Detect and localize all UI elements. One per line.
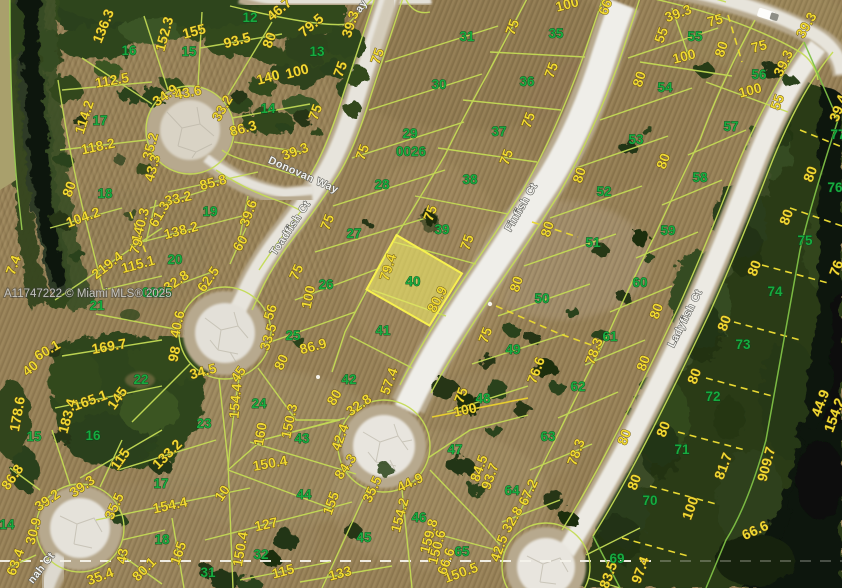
svg-text:51: 51 xyxy=(585,235,601,250)
svg-text:62: 62 xyxy=(570,379,585,394)
svg-text:21: 21 xyxy=(89,298,105,313)
svg-text:44: 44 xyxy=(296,487,312,502)
svg-text:72: 72 xyxy=(705,389,720,404)
svg-text:18: 18 xyxy=(154,532,170,547)
svg-text:60: 60 xyxy=(632,275,647,290)
svg-text:58: 58 xyxy=(692,170,708,185)
svg-text:64: 64 xyxy=(504,483,520,498)
svg-text:45: 45 xyxy=(356,530,372,545)
svg-text:154.4: 154.4 xyxy=(226,383,245,420)
svg-text:74: 74 xyxy=(767,284,783,299)
svg-text:75: 75 xyxy=(797,233,813,248)
svg-text:15: 15 xyxy=(26,429,42,444)
svg-text:49: 49 xyxy=(505,342,520,357)
svg-text:56: 56 xyxy=(751,67,767,82)
svg-text:39: 39 xyxy=(434,222,449,237)
svg-text:26: 26 xyxy=(318,277,334,292)
svg-text:29: 29 xyxy=(402,126,417,141)
svg-text:41: 41 xyxy=(375,323,391,338)
svg-text:61: 61 xyxy=(602,329,618,344)
svg-text:53: 53 xyxy=(628,132,644,147)
svg-text:59: 59 xyxy=(660,223,675,238)
svg-text:23: 23 xyxy=(196,416,212,431)
svg-text:63: 63 xyxy=(540,429,556,444)
svg-text:30: 30 xyxy=(431,77,446,92)
svg-text:18: 18 xyxy=(97,186,113,201)
svg-text:14: 14 xyxy=(260,101,276,116)
svg-text:25: 25 xyxy=(285,328,301,343)
svg-text:46: 46 xyxy=(411,510,427,525)
svg-text:57: 57 xyxy=(723,119,738,134)
svg-text:32: 32 xyxy=(253,547,268,562)
svg-text:12: 12 xyxy=(242,10,257,25)
svg-text:47: 47 xyxy=(447,442,462,457)
svg-text:13: 13 xyxy=(309,44,325,59)
svg-text:0026: 0026 xyxy=(396,144,427,159)
svg-text:28: 28 xyxy=(374,177,390,192)
svg-text:43: 43 xyxy=(294,431,310,446)
svg-text:16: 16 xyxy=(85,428,101,443)
svg-text:73: 73 xyxy=(735,337,751,352)
svg-text:52: 52 xyxy=(596,184,611,199)
svg-text:55: 55 xyxy=(687,29,703,44)
svg-text:17: 17 xyxy=(92,113,107,128)
svg-text:77: 77 xyxy=(830,127,842,142)
svg-text:65: 65 xyxy=(454,544,470,559)
svg-text:43: 43 xyxy=(113,547,131,565)
svg-text:69: 69 xyxy=(609,551,624,566)
svg-text:76: 76 xyxy=(827,180,842,195)
svg-text:31: 31 xyxy=(200,565,216,580)
svg-text:48: 48 xyxy=(475,391,491,406)
svg-text:70: 70 xyxy=(642,493,657,508)
svg-text:71: 71 xyxy=(674,442,690,457)
svg-text:22: 22 xyxy=(133,372,148,387)
svg-text:50: 50 xyxy=(534,291,549,306)
svg-text:35: 35 xyxy=(548,26,564,41)
svg-text:37: 37 xyxy=(491,124,506,139)
svg-text:38: 38 xyxy=(462,172,478,187)
svg-text:40: 40 xyxy=(405,274,420,289)
svg-text:42: 42 xyxy=(341,372,356,387)
svg-text:20: 20 xyxy=(167,252,182,267)
svg-text:19: 19 xyxy=(202,204,217,219)
svg-text:A11747222 © Miami MLS® 2025: A11747222 © Miami MLS® 2025 xyxy=(4,288,172,300)
svg-text:31: 31 xyxy=(459,29,475,44)
svg-text:54: 54 xyxy=(657,80,673,95)
svg-text:16: 16 xyxy=(121,43,137,58)
svg-text:36: 36 xyxy=(519,74,535,89)
svg-text:27: 27 xyxy=(346,226,361,241)
svg-text:24: 24 xyxy=(251,396,267,411)
svg-text:14: 14 xyxy=(0,517,15,532)
svg-text:15: 15 xyxy=(181,44,197,59)
svg-text:17: 17 xyxy=(153,476,168,491)
